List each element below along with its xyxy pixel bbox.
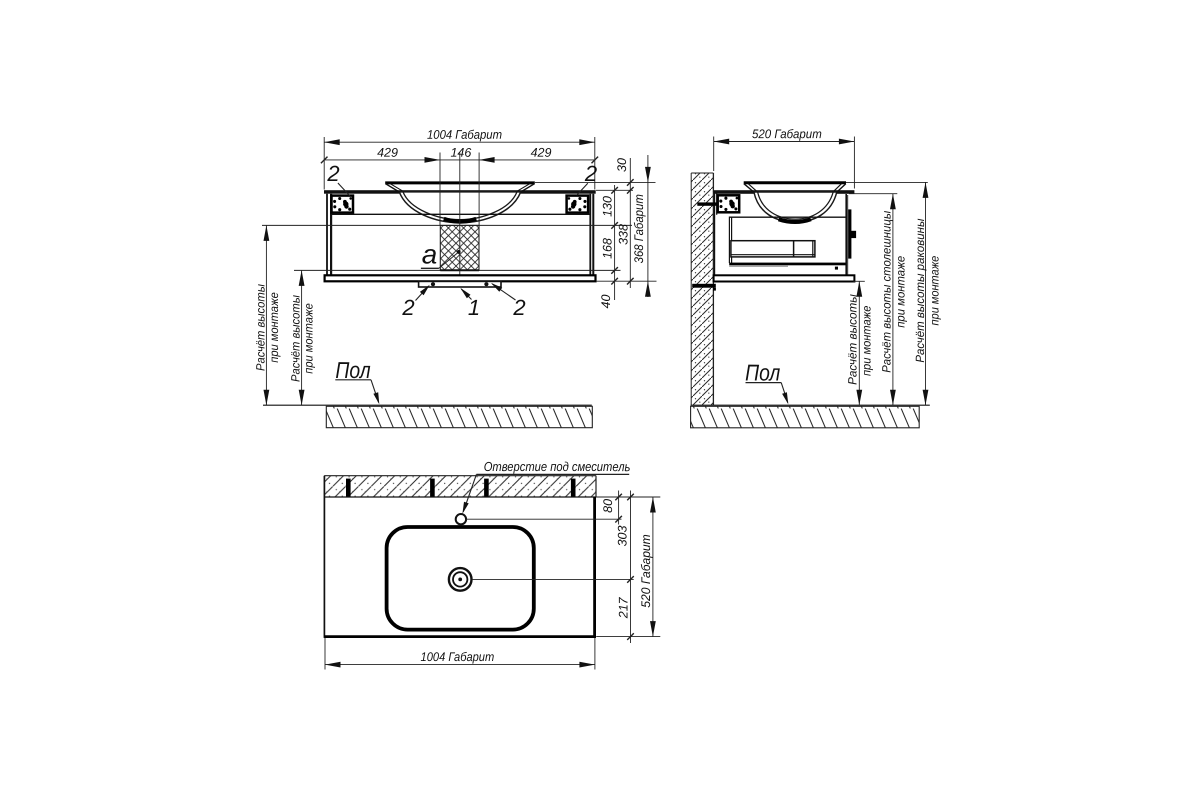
svg-text:Пол: Пол <box>335 357 370 383</box>
svg-text:Расчёт высоты: Расчёт высоты <box>254 284 268 371</box>
svg-text:217: 217 <box>616 596 630 619</box>
svg-text:Пол: Пол <box>745 359 780 385</box>
svg-text:168: 168 <box>600 238 614 259</box>
svg-text:при монтаже: при монтаже <box>927 255 941 325</box>
svg-text:1: 1 <box>468 295 480 320</box>
svg-text:80: 80 <box>601 499 615 513</box>
svg-text:Расчёт высоты раковины: Расчёт высоты раковины <box>913 218 927 362</box>
svg-text:146: 146 <box>450 146 471 160</box>
svg-text:368 Габарит: 368 Габарит <box>632 194 646 263</box>
svg-text:при монтаже: при монтаже <box>267 292 281 363</box>
svg-text:Расчёт высоты: Расчёт высоты <box>289 295 303 382</box>
svg-text:520 Габарит: 520 Габарит <box>752 127 822 141</box>
svg-text:2: 2 <box>584 161 597 186</box>
svg-text:Отверстие под смеситель: Отверстие под смеситель <box>484 459 631 474</box>
svg-text:при монтаже: при монтаже <box>859 305 873 376</box>
svg-text:1004 Габарит: 1004 Габарит <box>421 650 495 664</box>
svg-text:520 Габарит: 520 Габарит <box>639 534 653 607</box>
svg-text:130: 130 <box>601 196 615 217</box>
svg-text:2: 2 <box>401 295 414 320</box>
svg-text:30: 30 <box>615 158 629 172</box>
svg-text:при монтаже: при монтаже <box>894 256 908 328</box>
svg-text:338: 338 <box>616 224 630 245</box>
svg-text:Расчёт высоты столешницы: Расчёт высоты столешницы <box>880 211 894 373</box>
svg-text:2: 2 <box>326 161 339 186</box>
svg-text:при монтаже: при монтаже <box>302 303 316 374</box>
svg-text:1004 Габарит: 1004 Габарит <box>427 128 502 142</box>
svg-text:a: a <box>422 239 438 269</box>
svg-text:429: 429 <box>531 146 552 160</box>
svg-text:303: 303 <box>616 526 630 547</box>
svg-text:40: 40 <box>599 295 613 309</box>
svg-text:429: 429 <box>377 146 398 160</box>
svg-text:Расчёт высоты: Расчёт высоты <box>845 294 859 385</box>
